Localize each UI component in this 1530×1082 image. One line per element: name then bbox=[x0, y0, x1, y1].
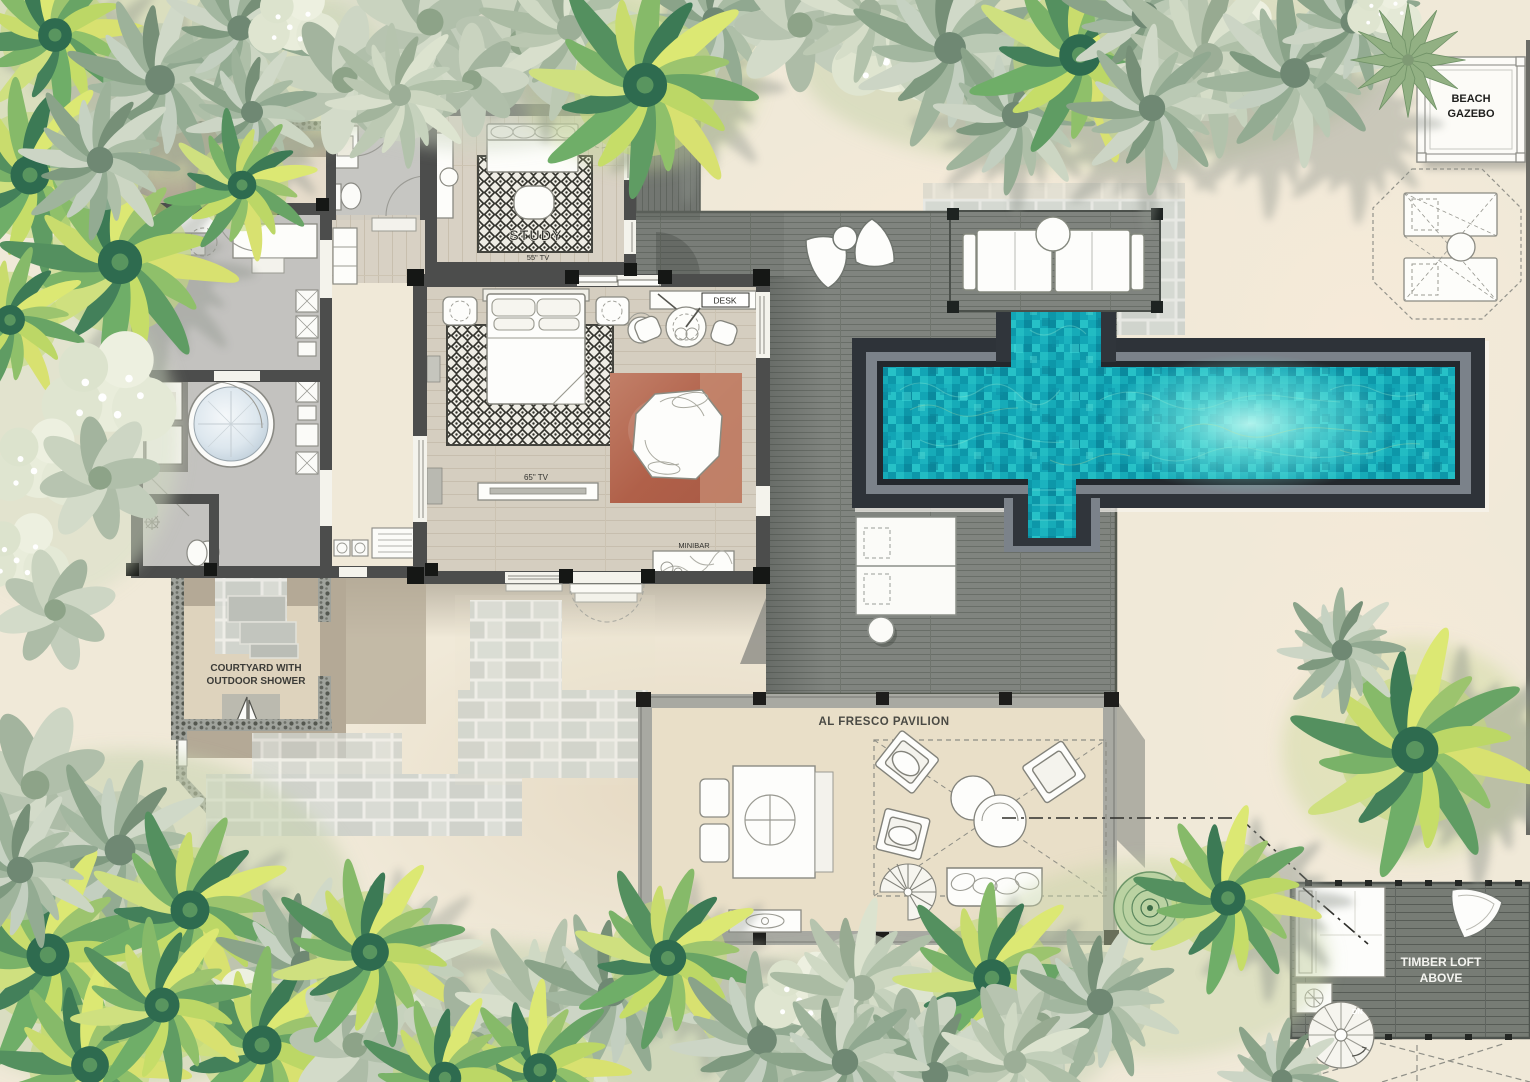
svg-text:65" TV: 65" TV bbox=[524, 473, 549, 482]
svg-text:MINIBAR: MINIBAR bbox=[678, 541, 710, 550]
svg-text:COURTYARD WITH: COURTYARD WITH bbox=[210, 663, 301, 674]
svg-text:55" TV: 55" TV bbox=[527, 253, 550, 262]
svg-text:GAZEBO: GAZEBO bbox=[1447, 108, 1495, 120]
svg-text:OUTDOOR SHOWER: OUTDOOR SHOWER bbox=[207, 676, 307, 687]
svg-text:DESK: DESK bbox=[713, 296, 736, 306]
svg-text:AL FRESCO PAVILION: AL FRESCO PAVILION bbox=[818, 716, 949, 728]
svg-text:TIMBER LOFT: TIMBER LOFT bbox=[1401, 955, 1482, 969]
svg-text:ABOVE: ABOVE bbox=[1420, 971, 1463, 985]
svg-text:STUDY: STUDY bbox=[509, 227, 562, 243]
svg-text:BEACH: BEACH bbox=[1451, 93, 1490, 105]
svg-text:DN: DN bbox=[1352, 1007, 1363, 1016]
